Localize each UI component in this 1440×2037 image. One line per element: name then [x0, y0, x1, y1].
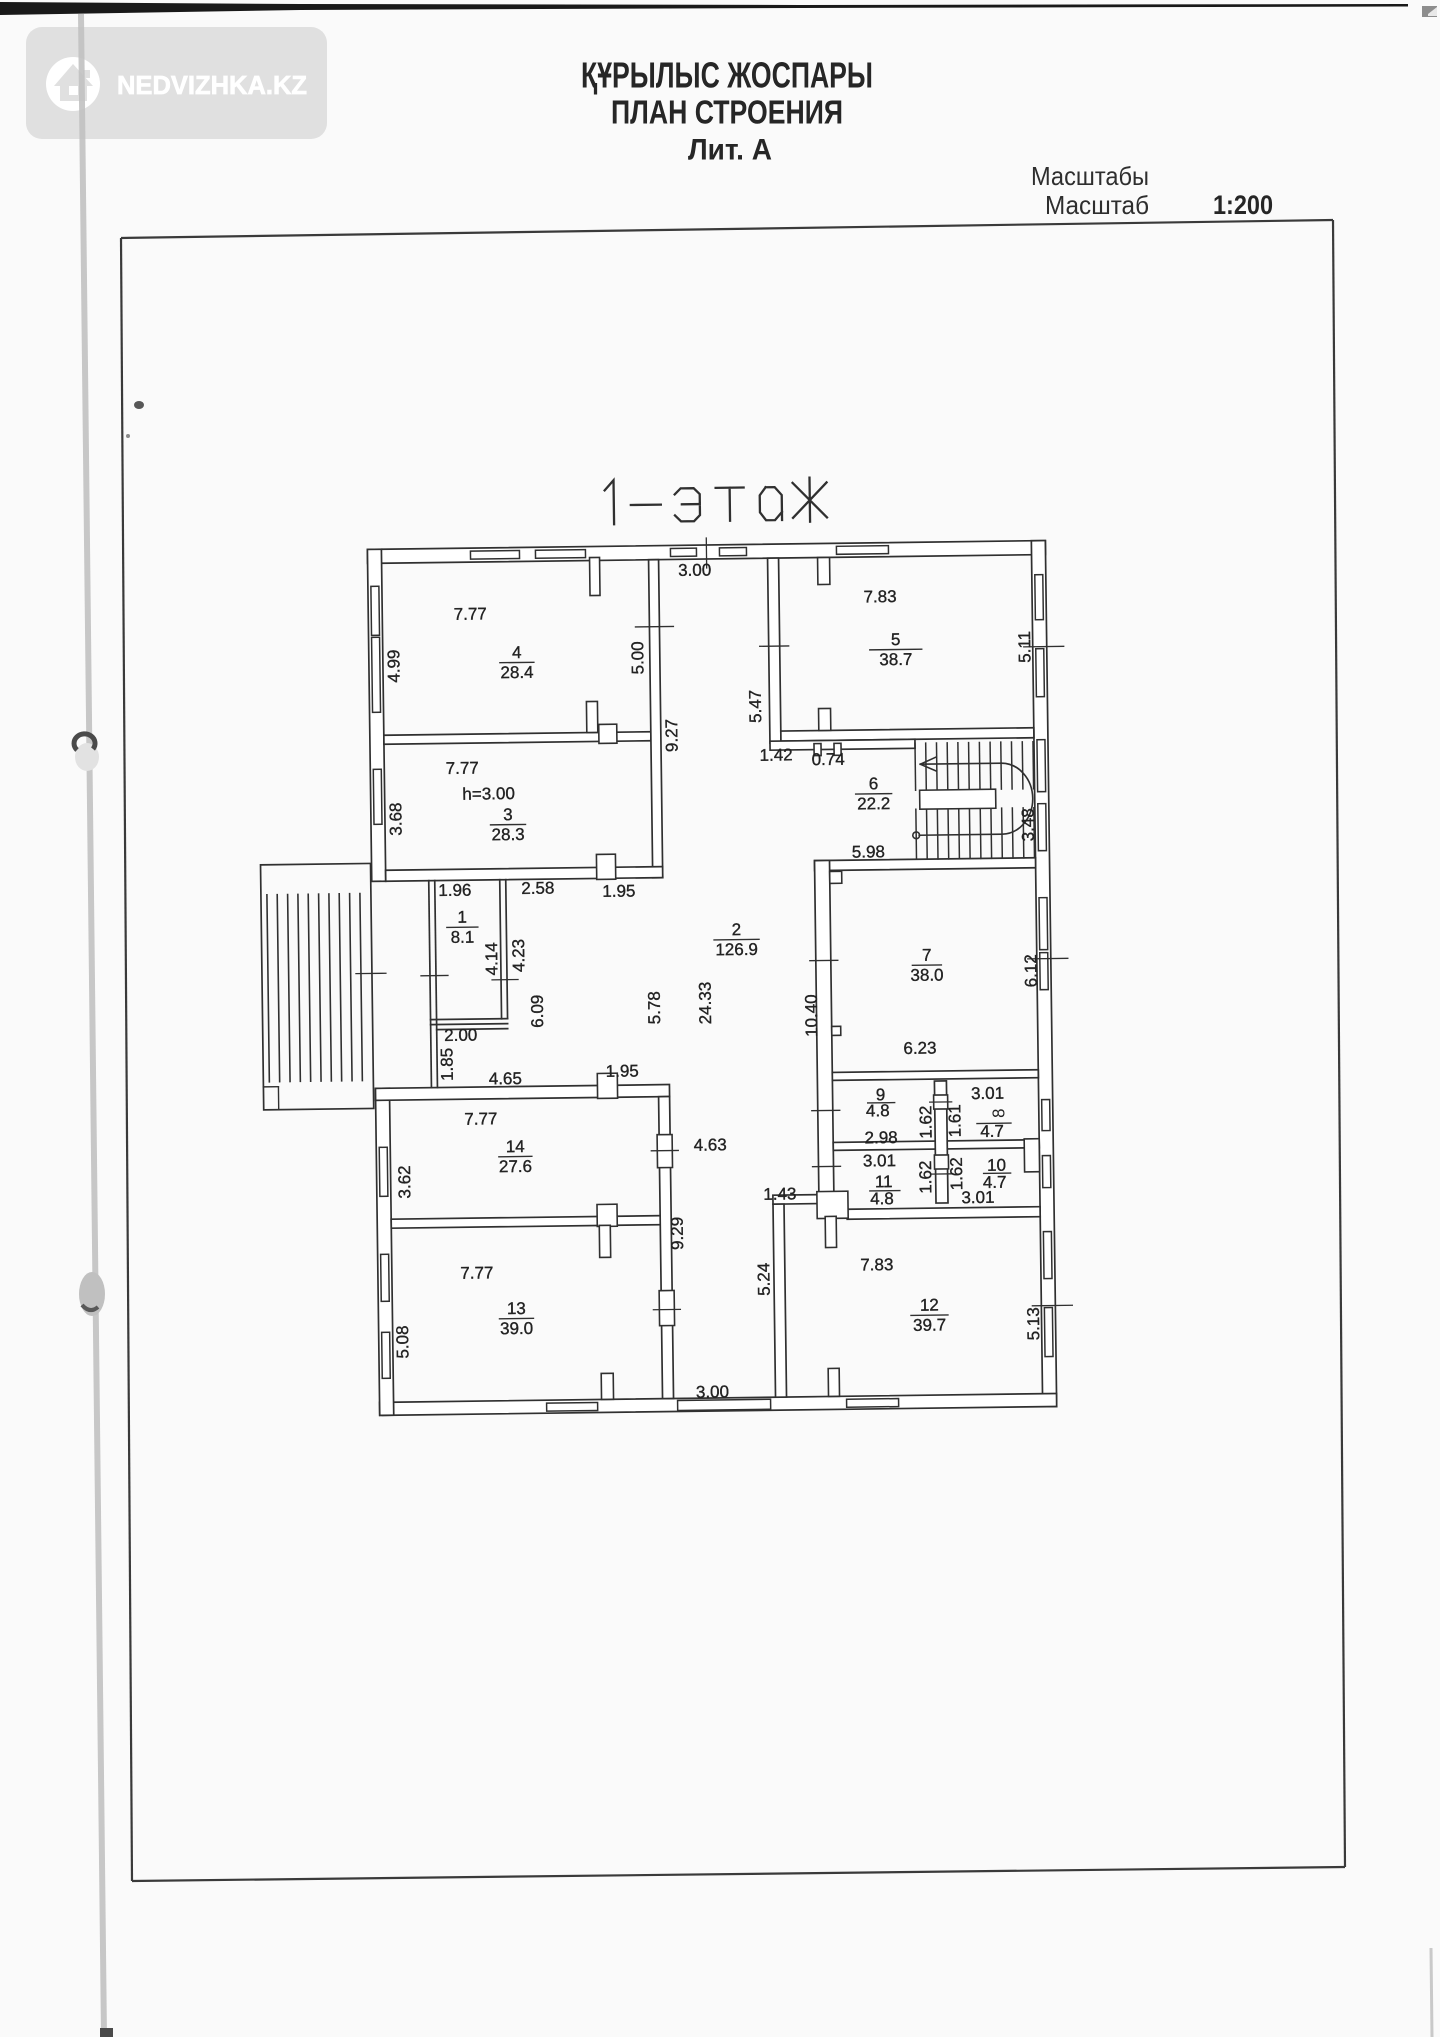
svg-text:1.61: 1.61: [945, 1104, 964, 1137]
svg-text:7.77: 7.77: [454, 604, 487, 623]
svg-text:9.29: 9.29: [668, 1217, 687, 1250]
svg-text:3.48: 3.48: [1018, 808, 1037, 841]
svg-text:8: 8: [989, 1108, 1008, 1118]
svg-text:1.43: 1.43: [763, 1184, 796, 1203]
svg-text:5.08: 5.08: [393, 1325, 412, 1358]
svg-text:3.01: 3.01: [961, 1188, 994, 1207]
svg-text:5.47: 5.47: [746, 690, 765, 723]
svg-text:6.23: 6.23: [903, 1039, 936, 1058]
svg-text:2.98: 2.98: [864, 1128, 897, 1147]
svg-text:28.3: 28.3: [491, 825, 524, 844]
svg-text:1.96: 1.96: [438, 881, 471, 900]
svg-text:1.62: 1.62: [916, 1106, 935, 1139]
svg-text:4.8: 4.8: [866, 1101, 890, 1120]
svg-text:0.74: 0.74: [812, 750, 845, 769]
svg-text:Масштабы: Масштабы: [1031, 161, 1149, 191]
svg-text:1.42: 1.42: [759, 745, 792, 764]
svg-text:12: 12: [920, 1296, 939, 1315]
svg-text:Масштаб: Масштаб: [1045, 190, 1149, 220]
svg-text:NEDVIZHKA.KZ: NEDVIZHKA.KZ: [117, 70, 307, 100]
svg-text:4.65: 4.65: [489, 1069, 522, 1088]
svg-text:6.12: 6.12: [1021, 954, 1040, 987]
svg-text:7.77: 7.77: [460, 1263, 493, 1282]
svg-text:7.83: 7.83: [863, 587, 896, 606]
svg-text:22.2: 22.2: [857, 794, 890, 813]
svg-text:h=3.00: h=3.00: [462, 784, 515, 804]
svg-text:4.8: 4.8: [870, 1189, 894, 1208]
svg-text:39.7: 39.7: [913, 1315, 946, 1334]
svg-text:3.01: 3.01: [971, 1084, 1004, 1103]
svg-text:5.24: 5.24: [754, 1263, 773, 1296]
svg-text:Лит. А: Лит. А: [688, 134, 772, 167]
svg-text:2.00: 2.00: [444, 1026, 477, 1045]
svg-text:3.62: 3.62: [395, 1165, 414, 1198]
svg-text:7: 7: [922, 946, 932, 965]
svg-text:4.99: 4.99: [384, 649, 403, 682]
svg-text:13: 13: [507, 1299, 526, 1318]
svg-text:5.13: 5.13: [1024, 1307, 1043, 1340]
svg-text:3.00: 3.00: [696, 1382, 729, 1401]
svg-text:ПЛАН СТРОЕНИЯ: ПЛАН СТРОЕНИЯ: [611, 94, 843, 131]
svg-text:1.95: 1.95: [606, 1061, 639, 1080]
svg-text:39.0: 39.0: [500, 1319, 533, 1338]
svg-text:4.7: 4.7: [980, 1122, 1004, 1141]
svg-text:5: 5: [891, 630, 901, 649]
svg-text:1.95: 1.95: [602, 881, 635, 900]
svg-text:14: 14: [506, 1137, 525, 1156]
svg-text:4.63: 4.63: [694, 1135, 727, 1154]
svg-text:1:200: 1:200: [1213, 190, 1273, 220]
svg-text:2.58: 2.58: [521, 879, 554, 898]
svg-text:1.85: 1.85: [437, 1048, 456, 1081]
svg-text:5.78: 5.78: [645, 991, 664, 1024]
svg-text:4.14: 4.14: [482, 942, 501, 975]
svg-text:2: 2: [732, 920, 742, 939]
svg-text:5.11: 5.11: [1015, 631, 1034, 663]
svg-text:8.1: 8.1: [451, 928, 475, 947]
svg-text:5.98: 5.98: [852, 842, 885, 861]
svg-text:126.9: 126.9: [715, 940, 758, 960]
svg-text:4: 4: [512, 643, 522, 662]
svg-text:3.68: 3.68: [386, 802, 405, 835]
svg-text:28.4: 28.4: [500, 663, 533, 682]
svg-text:7.83: 7.83: [860, 1255, 893, 1274]
svg-text:6: 6: [869, 774, 879, 793]
svg-text:38.0: 38.0: [910, 965, 943, 984]
svg-text:ҚҰРЫЛЫС ЖОСПАРЫ: ҚҰРЫЛЫС ЖОСПАРЫ: [581, 55, 873, 96]
svg-text:1.62: 1.62: [916, 1161, 935, 1194]
svg-text:3.01: 3.01: [863, 1151, 896, 1170]
svg-text:3.00: 3.00: [678, 560, 711, 579]
svg-text:10.40: 10.40: [802, 994, 822, 1037]
svg-text:1: 1: [457, 908, 467, 927]
svg-text:1.62: 1.62: [947, 1157, 966, 1190]
svg-text:38.7: 38.7: [879, 650, 912, 669]
svg-text:7.77: 7.77: [464, 1109, 497, 1128]
svg-text:4.23: 4.23: [509, 939, 528, 972]
svg-text:3: 3: [503, 805, 513, 824]
svg-text:27.6: 27.6: [499, 1157, 532, 1176]
svg-text:6.09: 6.09: [528, 995, 547, 1028]
svg-text:7.77: 7.77: [446, 759, 479, 778]
svg-text:9.27: 9.27: [662, 719, 681, 752]
svg-text:24.33: 24.33: [696, 982, 716, 1025]
svg-text:5.00: 5.00: [628, 641, 647, 674]
